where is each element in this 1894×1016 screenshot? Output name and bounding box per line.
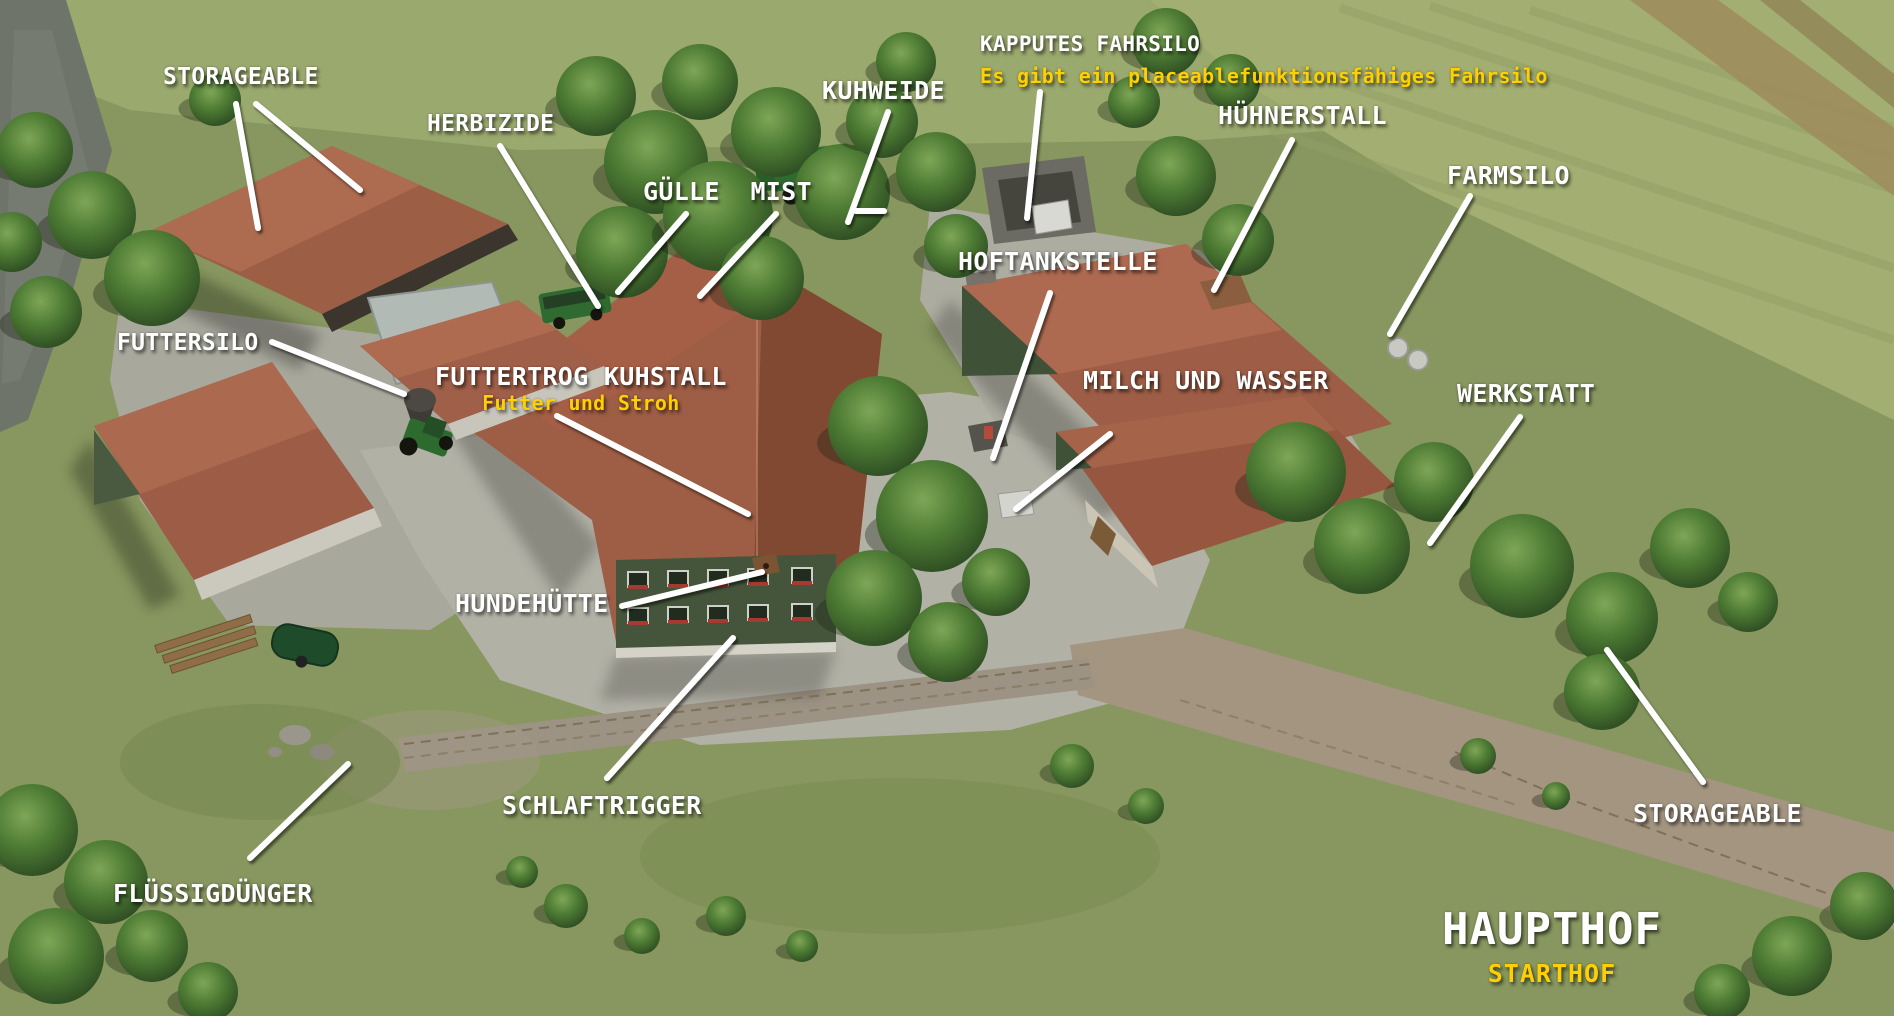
tree	[544, 884, 588, 928]
tree	[720, 236, 804, 320]
tree	[826, 550, 922, 646]
tree	[8, 908, 104, 1004]
tree	[1108, 76, 1160, 128]
tree	[1136, 136, 1216, 216]
tree	[1460, 738, 1496, 774]
tree	[1470, 514, 1574, 618]
tree	[1204, 54, 1260, 110]
tree	[828, 376, 928, 476]
tree	[924, 214, 988, 278]
tree	[506, 856, 538, 888]
tree	[962, 548, 1030, 616]
tree	[1128, 788, 1164, 824]
tree	[1314, 498, 1410, 594]
tree	[1050, 744, 1094, 788]
tree	[104, 230, 200, 326]
tree	[189, 74, 241, 126]
tree	[794, 144, 890, 240]
tree	[10, 276, 82, 348]
tree	[1542, 782, 1570, 810]
tree	[662, 44, 738, 120]
tree	[576, 206, 668, 298]
tree	[896, 132, 976, 212]
tree	[706, 896, 746, 936]
tree	[1650, 508, 1730, 588]
tree	[0, 112, 73, 188]
tree	[1132, 8, 1200, 76]
farm-aerial-screenshot: STORAGEABLEHERBIZIDEGÜLLE MISTKUHWEIDEKA…	[0, 0, 1894, 1016]
tree	[786, 930, 818, 962]
tree	[624, 918, 660, 954]
tree	[908, 602, 988, 682]
tree	[1752, 916, 1832, 996]
tree	[1394, 442, 1474, 522]
tree	[876, 32, 936, 92]
scene-background	[0, 0, 1894, 1016]
tree	[1202, 204, 1274, 276]
tree	[1246, 422, 1346, 522]
tree	[1564, 654, 1640, 730]
tree	[64, 840, 148, 924]
tree	[116, 910, 188, 982]
tree	[1718, 572, 1778, 632]
tree	[1566, 572, 1658, 664]
